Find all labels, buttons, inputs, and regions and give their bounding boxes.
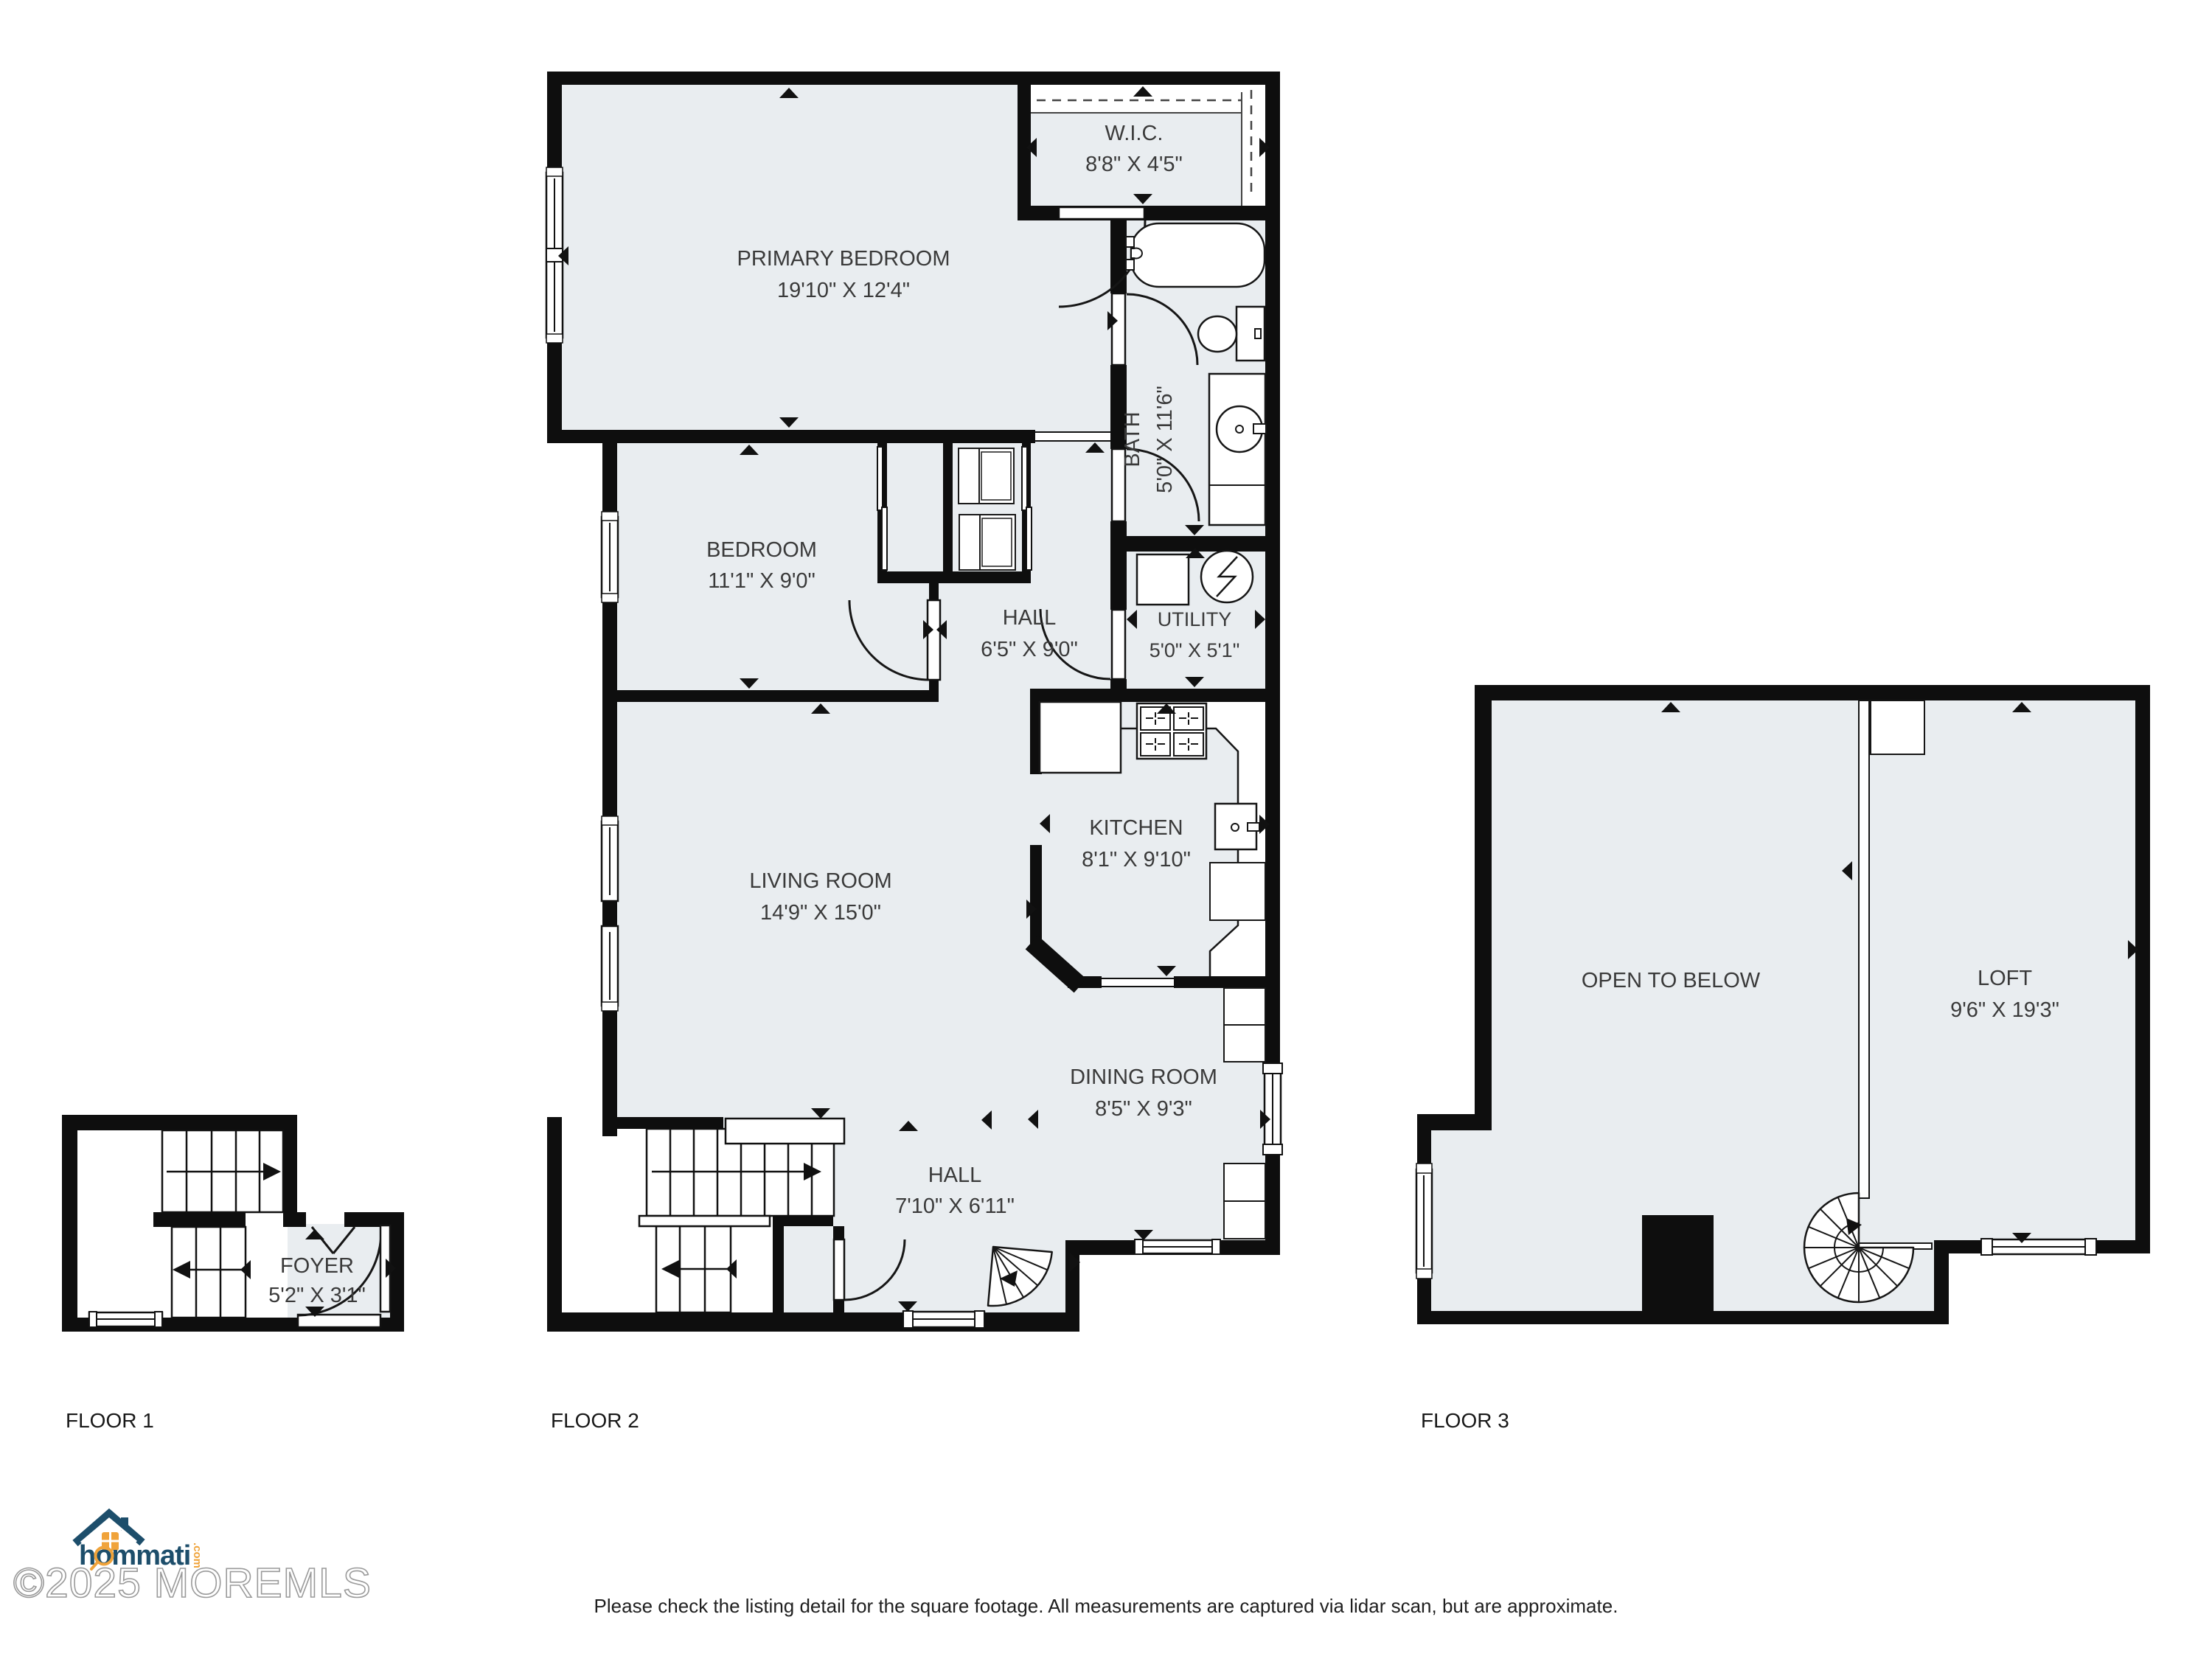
- svg-text:5'0" X 5'1": 5'0" X 5'1": [1150, 639, 1240, 661]
- svg-text:DINING ROOM: DINING ROOM: [1070, 1065, 1217, 1089]
- svg-text:.com: .com: [191, 1543, 204, 1568]
- svg-text:W.I.C.: W.I.C.: [1105, 122, 1164, 145]
- svg-text:UTILITY: UTILITY: [1158, 608, 1232, 630]
- svg-text:7'10" X 6'11": 7'10" X 6'11": [895, 1194, 1015, 1218]
- svg-text:FLOOR 3: FLOOR 3: [1421, 1409, 1509, 1432]
- svg-text:FLOOR 1: FLOOR 1: [66, 1409, 154, 1432]
- svg-text:PRIMARY BEDROOM: PRIMARY BEDROOM: [737, 247, 950, 271]
- svg-text:FOYER: FOYER: [280, 1254, 354, 1278]
- svg-text:HALL: HALL: [928, 1164, 982, 1187]
- svg-text:8'1" X 9'10": 8'1" X 9'10": [1082, 848, 1191, 872]
- svg-text:6'5" X 9'0": 6'5" X 9'0": [981, 638, 1078, 661]
- svg-text:LOFT: LOFT: [1978, 967, 2032, 990]
- svg-text:BEDROOM: BEDROOM: [706, 538, 817, 562]
- svg-text:Please check the listing detai: Please check the listing detail for the …: [594, 1595, 1618, 1617]
- svg-text:5'2" X 3'1": 5'2" X 3'1": [268, 1284, 366, 1307]
- svg-text:14'9" X 15'0": 14'9" X 15'0": [760, 901, 881, 925]
- svg-text:HALL: HALL: [1003, 606, 1057, 630]
- svg-text:FLOOR 2: FLOOR 2: [551, 1409, 639, 1432]
- svg-text:KITCHEN: KITCHEN: [1089, 816, 1183, 840]
- svg-text:BATH: BATH: [1121, 411, 1144, 467]
- svg-text:8'5" X 9'3": 8'5" X 9'3": [1095, 1097, 1192, 1121]
- svg-text:8'8" X 4'5": 8'8" X 4'5": [1085, 153, 1183, 176]
- svg-text:9'6" X 19'3": 9'6" X 19'3": [1950, 998, 2059, 1022]
- svg-text:OPEN TO BELOW: OPEN TO BELOW: [1582, 969, 1761, 992]
- svg-text:5'0" X 11'6": 5'0" X 11'6": [1153, 386, 1177, 493]
- svg-text:11'1" X 9'0": 11'1" X 9'0": [708, 569, 815, 593]
- svg-text:19'10" X 12'4": 19'10" X 12'4": [777, 279, 910, 302]
- svg-text:LIVING ROOM: LIVING ROOM: [749, 869, 891, 893]
